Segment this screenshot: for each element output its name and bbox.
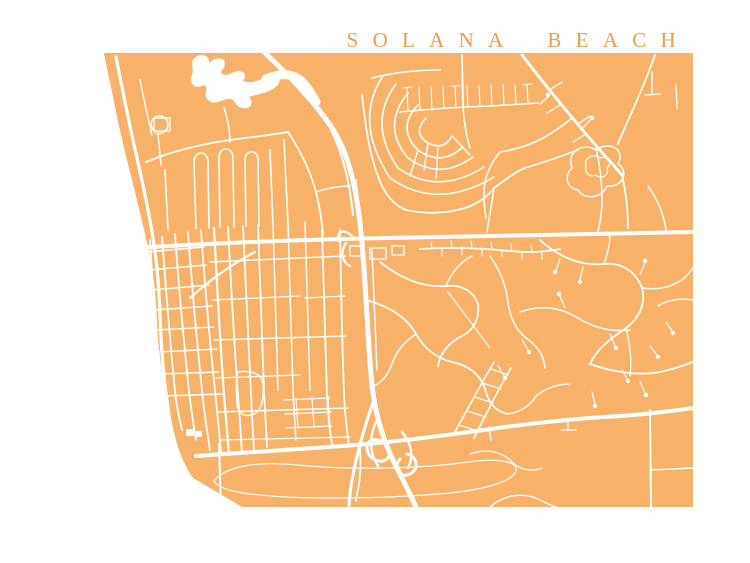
cul-de-sac-dot bbox=[593, 404, 597, 408]
cul-de-sac-dot bbox=[590, 116, 594, 120]
cul-de-sac-dot bbox=[671, 331, 675, 335]
map-structure bbox=[196, 431, 202, 437]
cul-de-sac-dot bbox=[553, 270, 557, 274]
map-title: SOLANA BEACH bbox=[347, 28, 690, 53]
cul-de-sac-dot bbox=[503, 376, 507, 380]
road bbox=[462, 55, 463, 106]
cul-de-sac-dot bbox=[644, 393, 648, 397]
cul-de-sac-dot bbox=[546, 93, 550, 97]
cul-de-sac-dot bbox=[626, 379, 630, 383]
cul-de-sac-dot bbox=[578, 280, 582, 284]
cul-de-sac-dot bbox=[527, 350, 531, 354]
map-structure bbox=[186, 429, 194, 436]
cul-de-sac-dot bbox=[557, 292, 561, 296]
map-poster: SOLANA BEACH bbox=[0, 0, 750, 563]
city-map bbox=[0, 0, 750, 563]
road bbox=[650, 410, 651, 507]
cul-de-sac-dot bbox=[643, 259, 647, 263]
cul-de-sac-dot bbox=[656, 355, 660, 359]
cul-de-sac-dot bbox=[614, 346, 618, 350]
